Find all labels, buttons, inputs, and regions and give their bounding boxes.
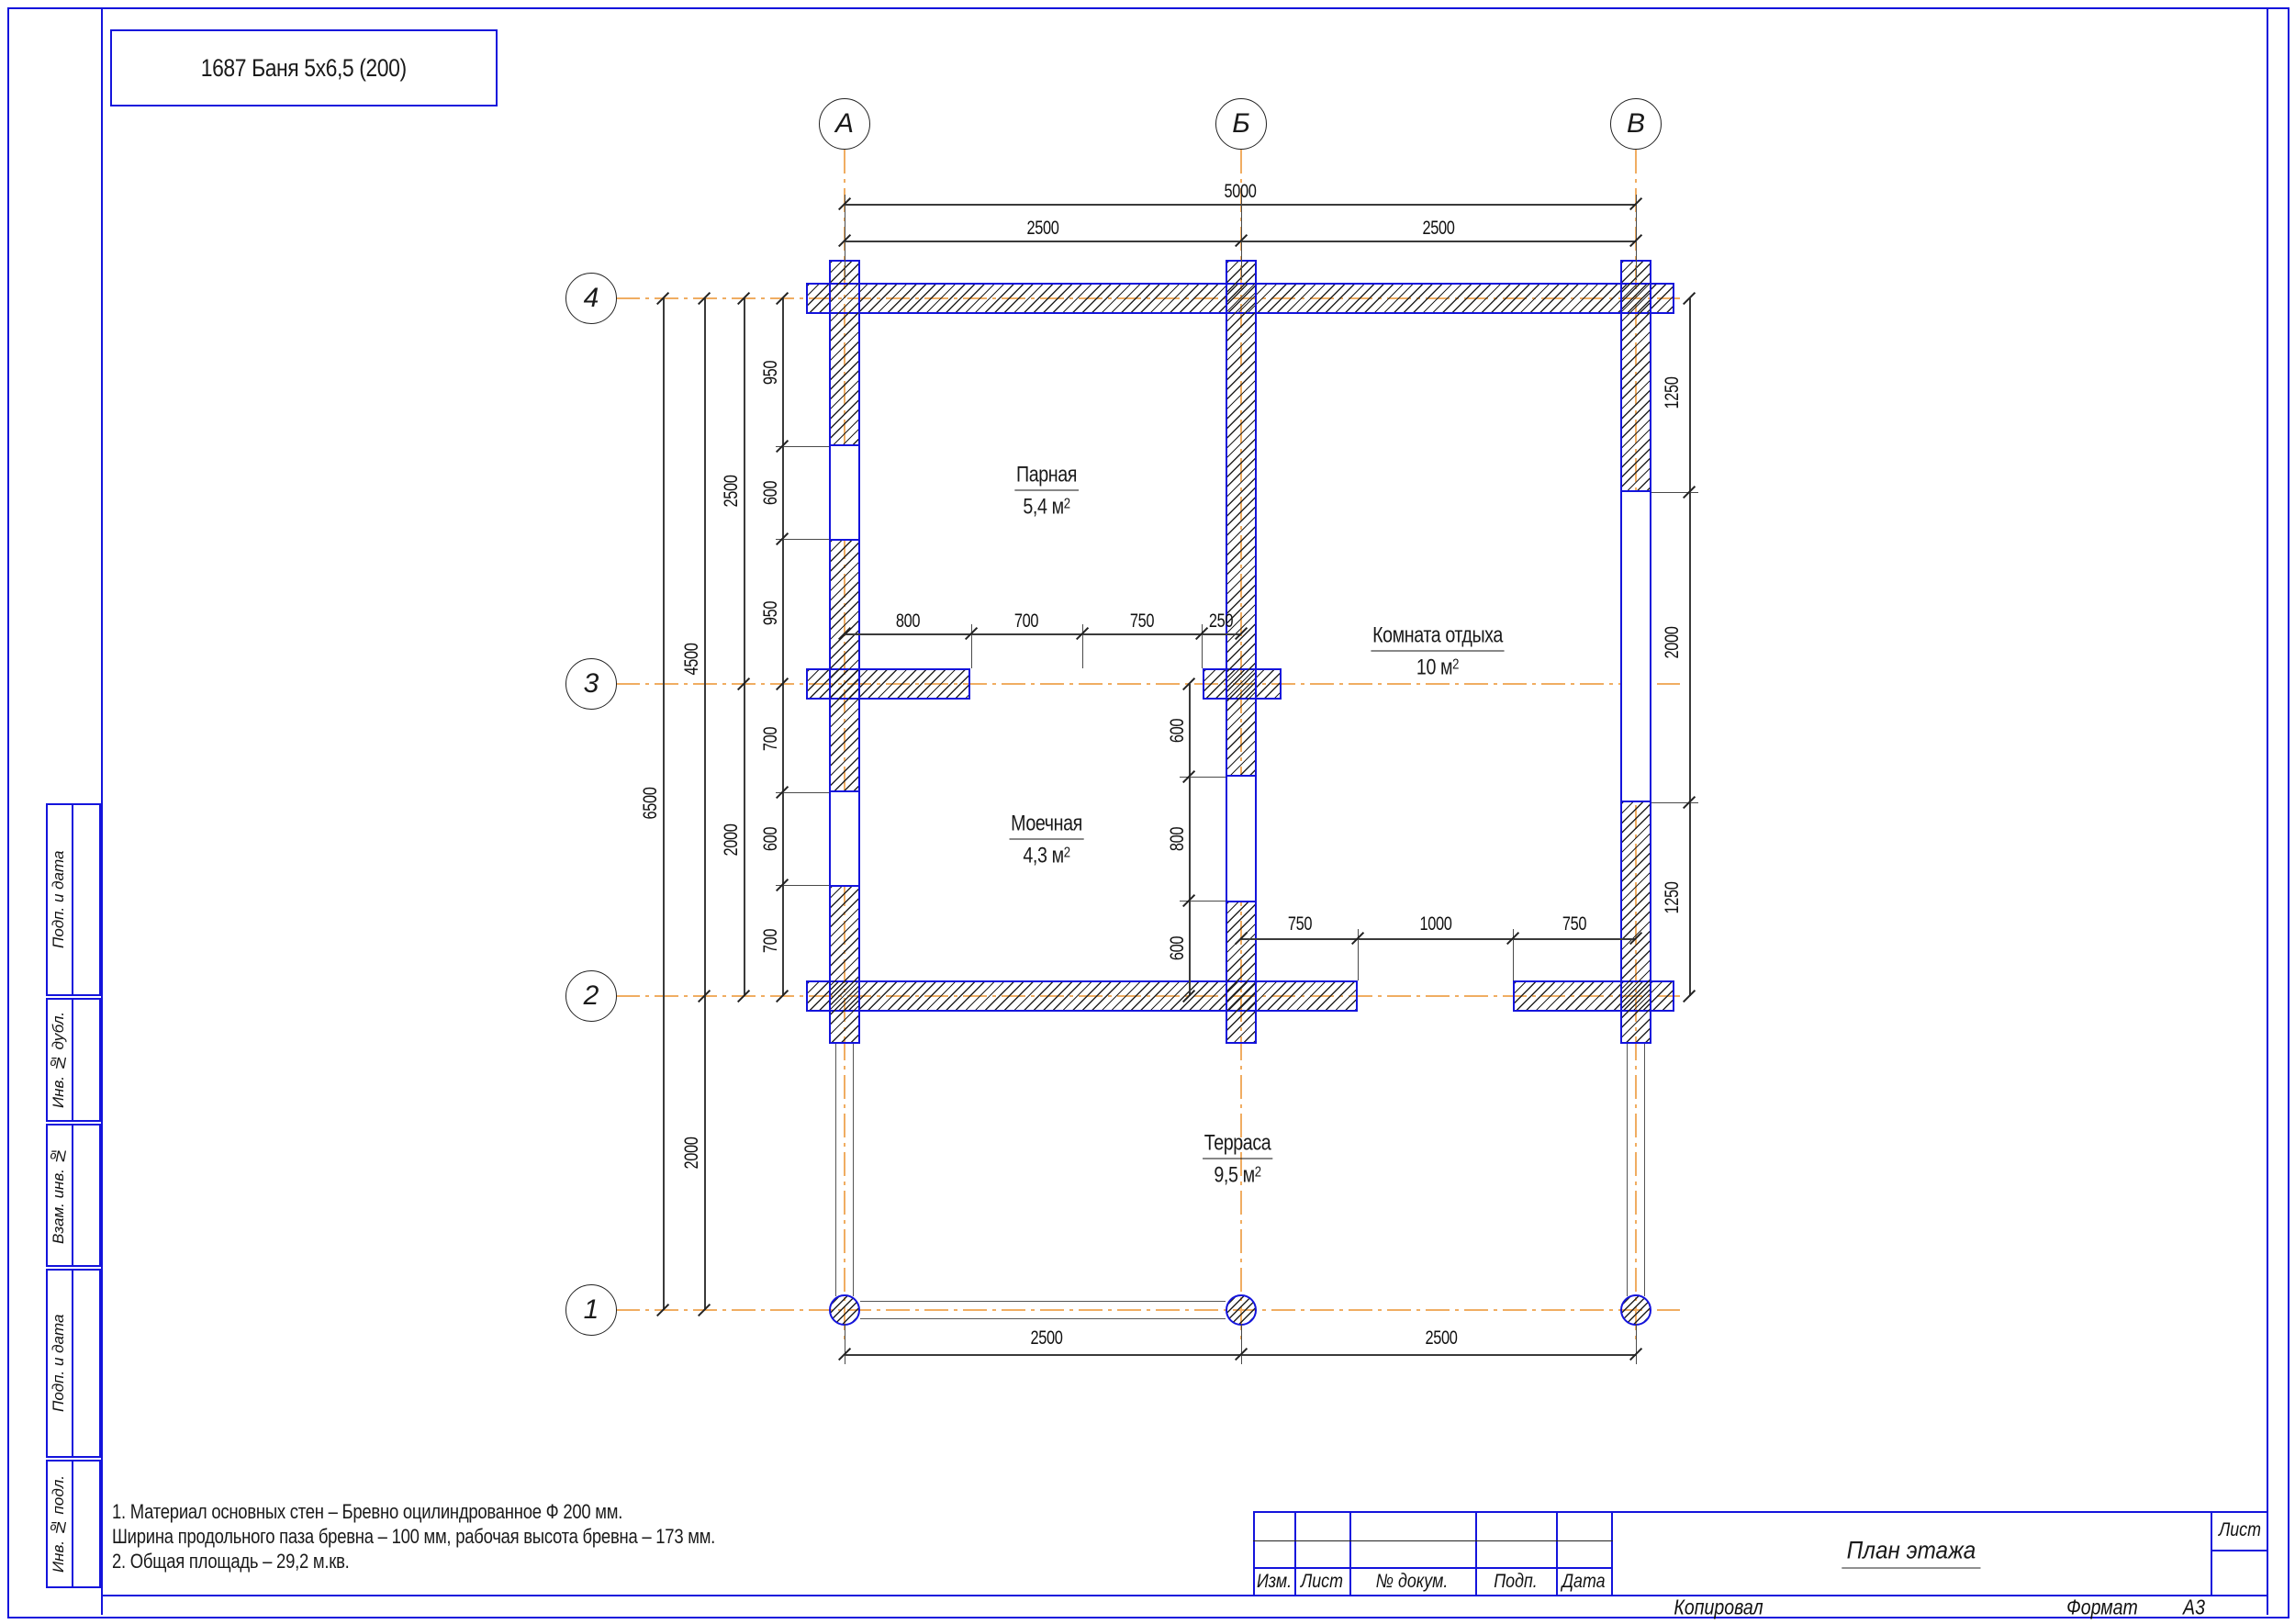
dimension-line xyxy=(1189,684,1191,996)
extension-line xyxy=(1651,802,1698,803)
titleblock-top xyxy=(1253,1511,2268,1513)
stamp-divider xyxy=(72,1000,73,1120)
stamp-label: Подп. и дата xyxy=(46,1271,72,1456)
axis-bubble-4: 4 xyxy=(565,273,617,324)
room-area: 5,4 м2 xyxy=(1014,495,1078,521)
room-area: 9,5 м2 xyxy=(1203,1163,1272,1189)
room-label: Парная5,4 м2 xyxy=(1008,463,1086,521)
terrace-railing xyxy=(860,1301,1226,1319)
wall-segment xyxy=(1226,260,1257,777)
wall-segment xyxy=(829,260,860,446)
extension-line xyxy=(776,885,829,886)
extension-line xyxy=(776,539,829,540)
dimension-label: 700 xyxy=(760,929,782,953)
dimension-line xyxy=(845,633,1241,635)
dimension-label: 950 xyxy=(760,361,782,385)
sidebar-stamp-box: Подп. и дата xyxy=(46,803,101,996)
note-line: 2. Общая площадь – 29,2 м.кв. xyxy=(112,1550,350,1574)
window-opening xyxy=(1226,777,1257,901)
dimension-label: 750 xyxy=(1130,610,1154,633)
window-opening xyxy=(829,446,860,539)
room-area: 4,3 м2 xyxy=(1010,844,1084,869)
dimension-label: 700 xyxy=(760,727,782,751)
copied-label: Копировал xyxy=(1674,1596,1763,1620)
tb-row-line-blue xyxy=(1253,1567,1613,1569)
room-name: Моечная xyxy=(1010,812,1084,840)
stamp-divider xyxy=(72,1462,73,1586)
tb-v4 xyxy=(1556,1511,1558,1596)
dimension-label: 1250 xyxy=(1662,377,1684,409)
dimension-line xyxy=(744,298,745,996)
tb-col-docnum: № докум. xyxy=(1376,1571,1449,1593)
wall-segment xyxy=(829,539,860,792)
dimension-label: 2500 xyxy=(1027,218,1059,240)
tb-v2 xyxy=(1349,1511,1351,1596)
stamp-divider xyxy=(72,1271,73,1456)
room-label: Моечная4,3 м2 xyxy=(1002,812,1092,869)
drawing-sheet: 1687 Баня 5х6,5 (200) 500025002500650045… xyxy=(0,0,2295,1624)
axis-bubble-1: 1 xyxy=(565,1284,617,1336)
extension-line xyxy=(776,446,829,447)
tb-col-list: Лист xyxy=(1301,1571,1343,1593)
sheet-label: Лист xyxy=(2219,1519,2261,1541)
dimension-label: 4500 xyxy=(681,644,703,676)
dimension-label: 600 xyxy=(760,827,782,851)
dimension-label: 2000 xyxy=(1662,627,1684,659)
dimension-line xyxy=(1689,298,1691,996)
dimension-label: 1000 xyxy=(1420,913,1452,935)
sidebar-stamp-box: Инв. № подл. xyxy=(46,1460,101,1588)
axis-bubble-Б: Б xyxy=(1215,98,1267,150)
format-value: А3 xyxy=(2183,1596,2205,1620)
tb-row-line-black xyxy=(1253,1540,1613,1541)
tb-col-data: Дата xyxy=(1562,1571,1605,1593)
tb-v0 xyxy=(1253,1511,1255,1596)
wall-segment xyxy=(1620,260,1651,492)
wall-segment xyxy=(806,980,1358,1012)
axis-bubble-3: 3 xyxy=(565,658,617,710)
drawing-title: План этажа xyxy=(1842,1537,1980,1569)
stamp-divider xyxy=(72,1126,73,1265)
stamp-label: Инв. № подл. xyxy=(46,1462,72,1586)
axis-line-3 xyxy=(616,683,1680,685)
terrace-column xyxy=(829,1294,860,1326)
room-label: Терраса9,5 м2 xyxy=(1195,1131,1281,1189)
dimension-line xyxy=(845,204,1636,206)
room-label: Комната отдыха10 м2 xyxy=(1357,623,1519,681)
dimension-label: 600 xyxy=(1167,719,1189,743)
sidebar-stamp-box: Взам. инв. № xyxy=(46,1124,101,1267)
terrace-column xyxy=(1226,1294,1257,1326)
dimension-label: 750 xyxy=(1562,913,1586,935)
terrace-column xyxy=(1620,1294,1651,1326)
dimension-line xyxy=(1241,938,1636,940)
dimension-label: 2500 xyxy=(1426,1327,1458,1350)
terrace-railing xyxy=(835,1044,854,1296)
dimension-label: 250 xyxy=(1209,610,1233,633)
extension-line xyxy=(1636,1324,1637,1364)
tb-v3 xyxy=(1475,1511,1477,1596)
dimension-label: 700 xyxy=(1014,610,1038,633)
extension-line xyxy=(1651,492,1698,493)
dimension-label: 800 xyxy=(1167,827,1189,851)
dimension-label: 750 xyxy=(1288,913,1312,935)
room-name: Парная xyxy=(1014,463,1078,491)
dimension-label: 2500 xyxy=(721,476,743,508)
dimension-label: 2000 xyxy=(681,1137,703,1170)
dimension-line xyxy=(704,298,706,1310)
terrace-railing xyxy=(1627,1044,1645,1296)
wall-segment xyxy=(1620,801,1651,1044)
window-opening xyxy=(1620,492,1651,801)
format-label: Формат xyxy=(2066,1596,2138,1620)
extension-line xyxy=(1241,1324,1242,1364)
room-area: 10 м2 xyxy=(1371,655,1504,681)
dimension-label: 600 xyxy=(1167,936,1189,960)
dimension-label: 800 xyxy=(896,610,920,633)
axis-bubble-2: 2 xyxy=(565,970,617,1022)
axis-bubble-А: А xyxy=(819,98,870,150)
stamp-label: Взам. инв. № xyxy=(46,1126,72,1265)
extension-line xyxy=(845,1324,845,1364)
dimension-label: 2500 xyxy=(1031,1327,1063,1350)
room-name: Терраса xyxy=(1203,1131,1272,1159)
dimension-label: 6500 xyxy=(640,788,662,820)
dimension-line xyxy=(782,298,784,996)
dimension-line xyxy=(663,298,665,1310)
tb-v6 xyxy=(2211,1511,2212,1596)
room-name: Комната отдыха xyxy=(1371,623,1504,652)
tb-v1 xyxy=(1294,1511,1296,1596)
floor-plan: 5000250025006500450020002500200095060095… xyxy=(0,0,2295,1624)
tb-sheet-divider xyxy=(2211,1550,2268,1551)
dimension-label: 2500 xyxy=(1423,218,1455,240)
tb-v5 xyxy=(1611,1511,1613,1596)
axis-bubble-В: В xyxy=(1610,98,1662,150)
sidebar-stamp-box: Инв. № дубл. xyxy=(46,998,101,1122)
stamp-label: Подп. и дата xyxy=(46,805,72,994)
stamp-divider xyxy=(72,805,73,994)
dimension-label: 950 xyxy=(760,601,782,625)
tb-col-podp: Подп. xyxy=(1494,1571,1538,1593)
dimension-label: 1250 xyxy=(1662,882,1684,914)
dimension-label: 600 xyxy=(760,481,782,505)
window-opening xyxy=(829,792,860,885)
dimension-label: 5000 xyxy=(1225,181,1257,203)
note-line: Ширина продольного паза бревна – 100 мм,… xyxy=(112,1525,715,1549)
sidebar-stamp-box: Подп. и дата xyxy=(46,1269,101,1458)
extension-line xyxy=(776,792,829,793)
note-line: 1. Материал основных стен – Бревно оцили… xyxy=(112,1500,622,1524)
tb-col-izm: Изм. xyxy=(1257,1571,1292,1593)
dimension-label: 2000 xyxy=(721,824,743,857)
stamp-label: Инв. № дубл. xyxy=(46,1000,72,1120)
wall-segment xyxy=(829,885,860,1044)
wall-segment xyxy=(1226,901,1257,1044)
